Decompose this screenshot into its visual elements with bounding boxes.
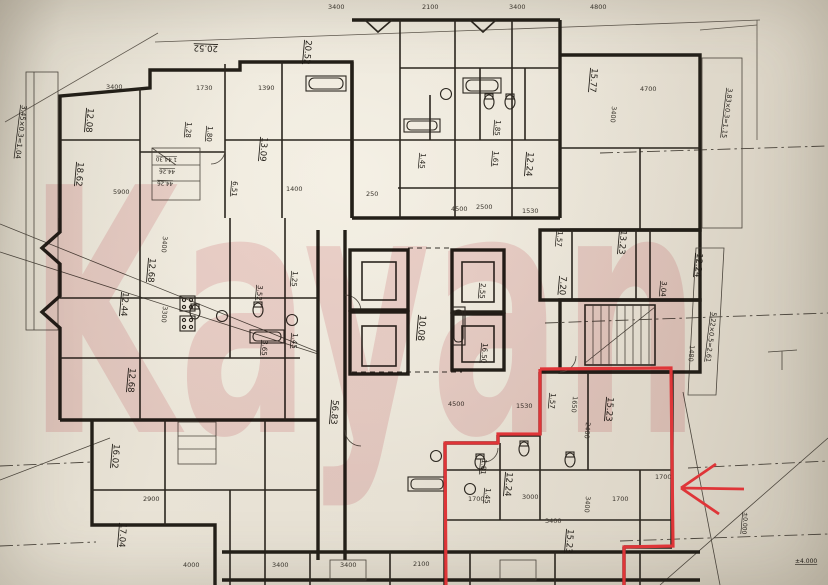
dimension-label: 1730	[196, 84, 213, 92]
room-area-label: ±0.000	[740, 512, 749, 535]
dimension-label: 2100	[413, 560, 430, 568]
dimension-label: 3400	[272, 561, 289, 569]
floorplan-drawing: 3.45×0.3=1.0412.0818.621.281.8013.096.51…	[0, 0, 828, 585]
room-area-label: 15.23	[563, 529, 575, 554]
dimension-label: 4700	[640, 85, 657, 93]
floorplan-photo: 3.45×0.3=1.0412.0818.621.281.8013.096.51…	[0, 0, 828, 585]
dimension-label: 2100	[422, 3, 439, 11]
room-area-label: 15.77	[587, 68, 599, 93]
room-area-label: 5.22×0.5=2.61	[704, 312, 718, 363]
room-area-label: 17.04	[116, 523, 128, 548]
dimension-label: 3400	[340, 561, 357, 569]
dimension-label: 1390	[258, 84, 275, 92]
dimension-label: 3400	[509, 3, 526, 11]
room-area-label: 3.83×0.3=1.15	[720, 88, 734, 139]
room-area-label: 20.52	[193, 42, 218, 53]
dimension-label: 3400	[328, 3, 345, 11]
dimension-label: 3400	[545, 517, 562, 525]
kayan-watermark: Kayan	[28, 117, 700, 513]
room-area-label: 20.52	[301, 40, 313, 65]
dimension-label: 4800	[590, 3, 607, 11]
room-area-label: ±4.000	[795, 558, 817, 565]
dimension-label: 3400	[106, 83, 123, 91]
dimension-label: 4000	[183, 561, 200, 569]
